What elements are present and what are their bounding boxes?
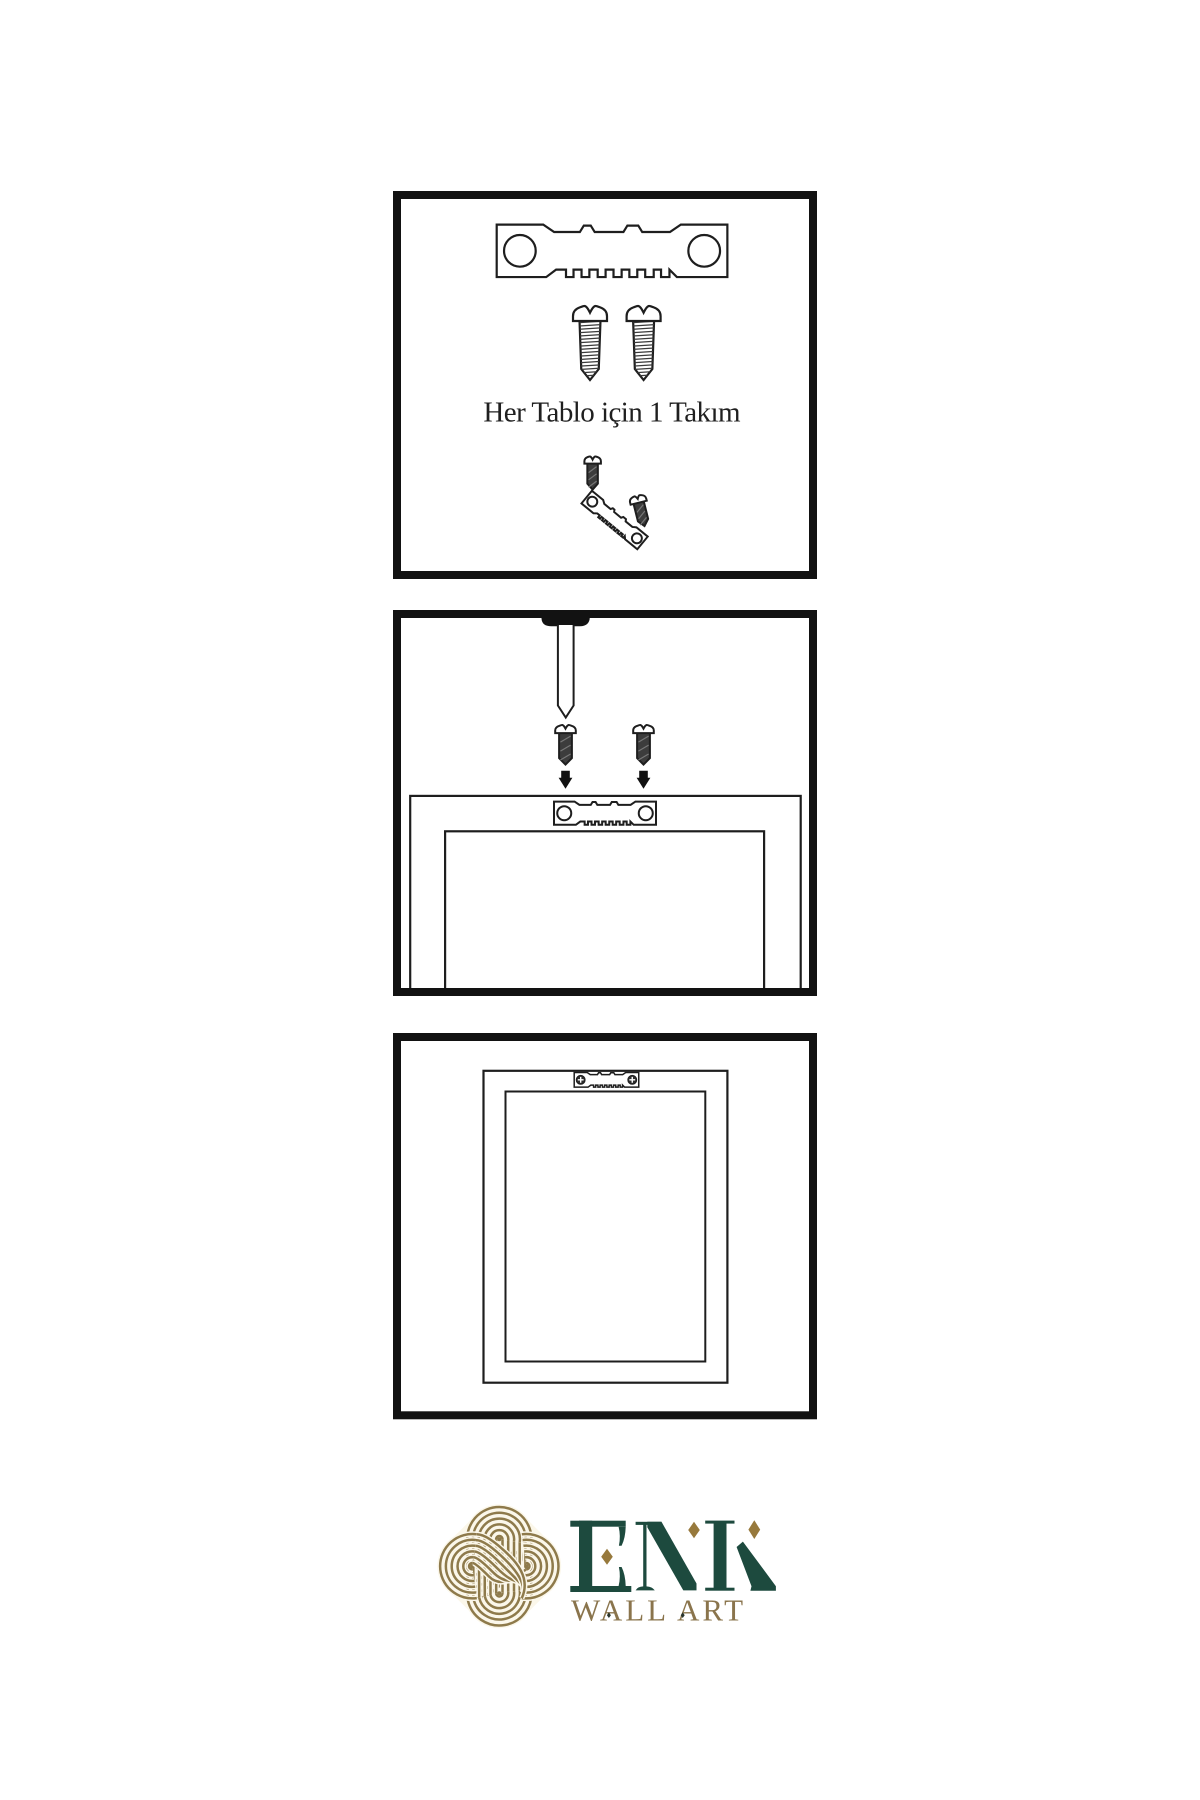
svg-text:WALL ART: WALL ART	[571, 1593, 746, 1628]
svg-text:Her Tablo için 1 Takım: Her Tablo için 1 Takım	[483, 397, 741, 429]
